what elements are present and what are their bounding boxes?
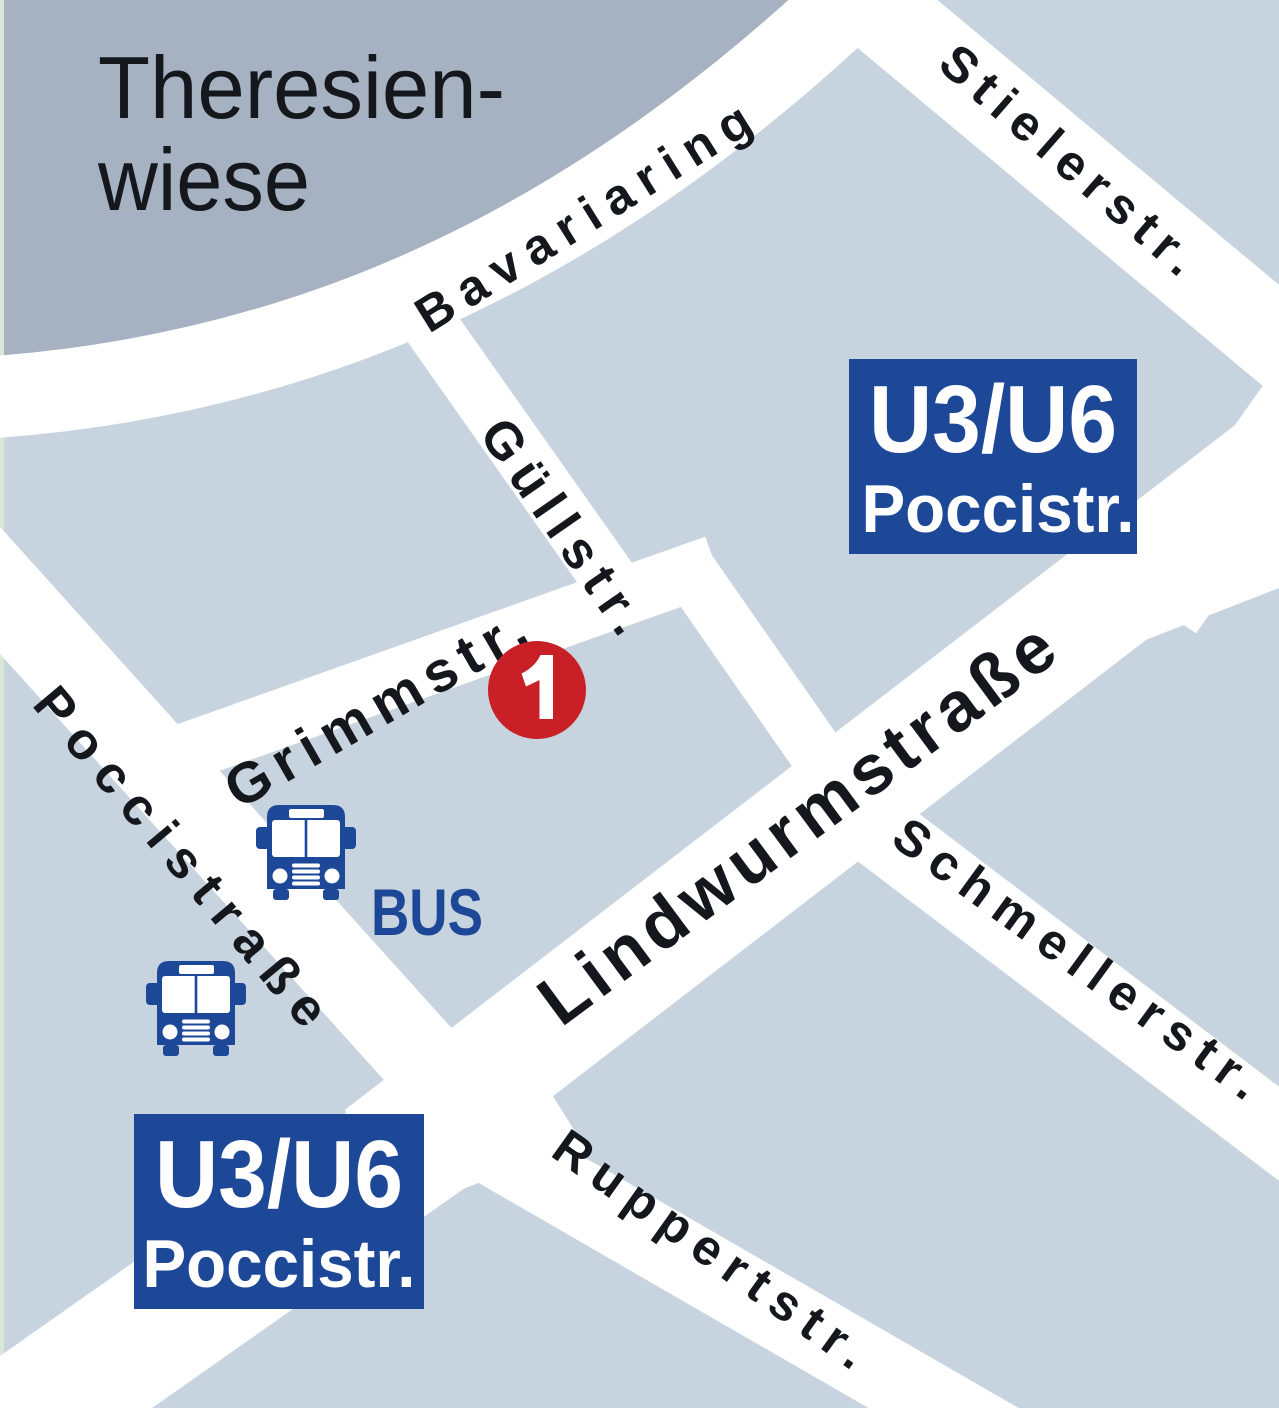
svg-text:Poccistr.: Poccistr. (143, 1226, 416, 1302)
svg-text:Theresien-: Theresien- (98, 38, 505, 137)
svg-text:BUS: BUS (371, 875, 483, 949)
svg-text:wiese: wiese (97, 130, 310, 229)
svg-text:U3/U6: U3/U6 (869, 366, 1117, 473)
svg-text:Poccistr.: Poccistr. (862, 471, 1135, 547)
svg-text:U3/U6: U3/U6 (155, 1121, 403, 1228)
